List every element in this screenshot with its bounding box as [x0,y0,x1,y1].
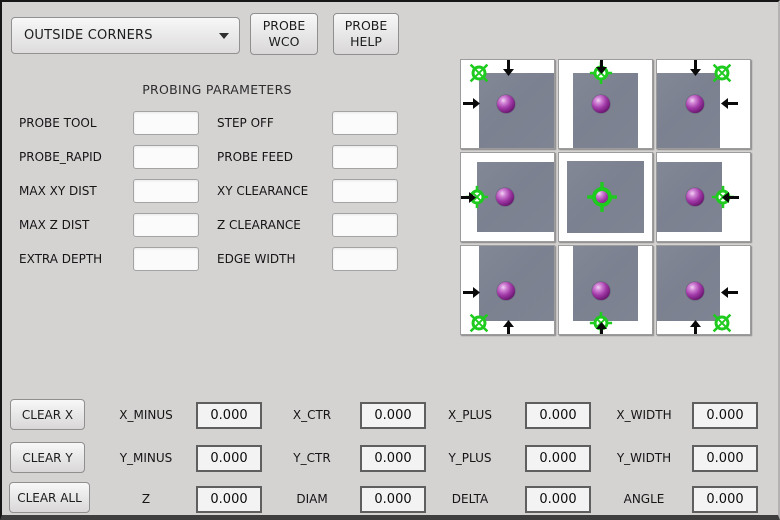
edge-width-label: EDGE WIDTH [217,247,296,271]
x-width-field[interactable] [692,402,758,429]
diam-field[interactable] [360,486,426,513]
probe-direction-right-arrow-icon [463,98,480,109]
angle-field[interactable] [692,486,758,513]
probe-help-line2: HELP [350,34,382,50]
y-plus-label: Y_PLUS [425,445,515,472]
probe-tile-top-left-corner[interactable] [460,59,555,149]
delta-label: DELTA [425,486,515,513]
probe-wco-line1: PROBE [263,18,306,34]
step-off-label: STEP OFF [217,111,274,135]
probe-mode-value: OUTSIDE CORNERS [24,28,219,43]
clear-x-button[interactable]: CLEAR X [10,399,85,430]
parameters-title: PROBING PARAMETERS [2,82,432,97]
probe-tile-bottom-right-corner[interactable] [656,245,751,335]
target-crosshair-icon [710,311,734,335]
delta-field[interactable] [525,486,591,513]
target-crosshair-icon [586,181,618,213]
probe-direction-left-arrow-icon [721,98,738,109]
probe-tile-top-right-corner[interactable] [656,59,751,149]
angle-label: ANGLE [599,486,689,513]
probe-direction-left-arrow-icon [721,287,738,298]
probe-grid [460,59,751,335]
probe-tile-top-edge[interactable] [558,59,653,149]
y-minus-field[interactable] [196,445,262,472]
probe-tile-bottom-edge[interactable] [558,245,653,335]
probe-ball-icon [497,95,515,113]
probe-ball-icon [686,188,704,206]
probe-rapid-label: PROBE_RAPID [19,145,102,169]
probe-ball-icon [496,188,514,206]
workpiece-surface [479,246,554,321]
probe-window: OUTSIDE CORNERS PROBE WCO PROBE HELP PRO… [0,0,780,520]
probe-feed-label: PROBE FEED [217,145,293,169]
z-clearance-input[interactable] [332,213,398,237]
probe-help-button[interactable]: PROBE HELP [333,13,399,55]
extra-depth-label: EXTRA DEPTH [19,247,102,271]
x-ctr-field[interactable] [360,402,426,429]
probe-tile-bottom-left-corner[interactable] [460,245,555,335]
probe-wco-button[interactable]: PROBE WCO [250,13,318,55]
z-clearance-label: Z CLEARANCE [217,213,301,237]
clear-y-button[interactable]: CLEAR Y [10,442,85,473]
max-xy-dist-label: MAX XY DIST [19,179,97,203]
x-plus-label: X_PLUS [425,402,515,429]
dropdown-arrow-icon [219,33,229,39]
probe-ball-icon [686,95,704,113]
max-z-dist-label: MAX Z DIST [19,213,89,237]
probe-ball-icon [592,282,610,300]
clear-all-button[interactable]: CLEAR ALL [9,482,90,513]
probe-wco-line2: WCO [269,34,300,50]
probe-tool-label: PROBE TOOL [19,111,97,135]
probe-direction-right-arrow-icon [460,192,476,203]
extra-depth-input[interactable] [133,247,199,271]
probe-direction-up-arrow-icon [503,320,514,335]
x-minus-field[interactable] [196,402,262,429]
max-xy-dist-input[interactable] [133,179,199,203]
probe-tile-left-edge[interactable] [460,152,555,242]
probe-ball-icon [592,95,610,113]
max-z-dist-input[interactable] [133,213,199,237]
x-plus-field[interactable] [525,402,591,429]
probe-help-line1: PROBE [345,18,388,34]
probe-tile-center[interactable] [558,152,653,242]
target-crosshair-icon [710,61,734,85]
edge-width-input[interactable] [332,247,398,271]
step-off-input[interactable] [332,111,398,135]
y-width-label: Y_WIDTH [599,445,689,472]
x-minus-label: X_MINUS [101,402,191,429]
xy-clearance-input[interactable] [332,179,398,203]
z-field[interactable] [196,486,262,513]
probe-ball-icon [497,282,515,300]
y-minus-label: Y_MINUS [101,445,191,472]
probe-direction-up-arrow-icon [596,322,607,335]
probe-tool-input[interactable] [133,111,199,135]
target-crosshair-icon [467,61,491,85]
y-ctr-field[interactable] [360,445,426,472]
probe-mode-select[interactable]: OUTSIDE CORNERS [11,17,240,54]
probe-tile-right-edge[interactable] [656,152,751,242]
y-plus-field[interactable] [525,445,591,472]
probe-direction-down-arrow-icon [596,59,607,74]
xy-clearance-label: XY CLEARANCE [217,179,308,203]
probe-ball-icon [686,282,704,300]
probe-rapid-input[interactable] [133,145,199,169]
y-ctr-label: Y_CTR [267,445,357,472]
target-crosshair-icon [467,311,491,335]
x-width-label: X_WIDTH [599,402,689,429]
probe-direction-down-arrow-icon [690,59,701,76]
x-ctr-label: X_CTR [267,402,357,429]
probe-direction-right-arrow-icon [463,287,480,298]
y-width-field[interactable] [692,445,758,472]
z-label: Z [101,486,191,513]
probe-direction-down-arrow-icon [503,59,514,76]
probe-direction-up-arrow-icon [690,320,701,335]
probe-direction-left-arrow-icon [722,192,739,203]
diam-label: DIAM [267,486,357,513]
probe-feed-input[interactable] [332,145,398,169]
